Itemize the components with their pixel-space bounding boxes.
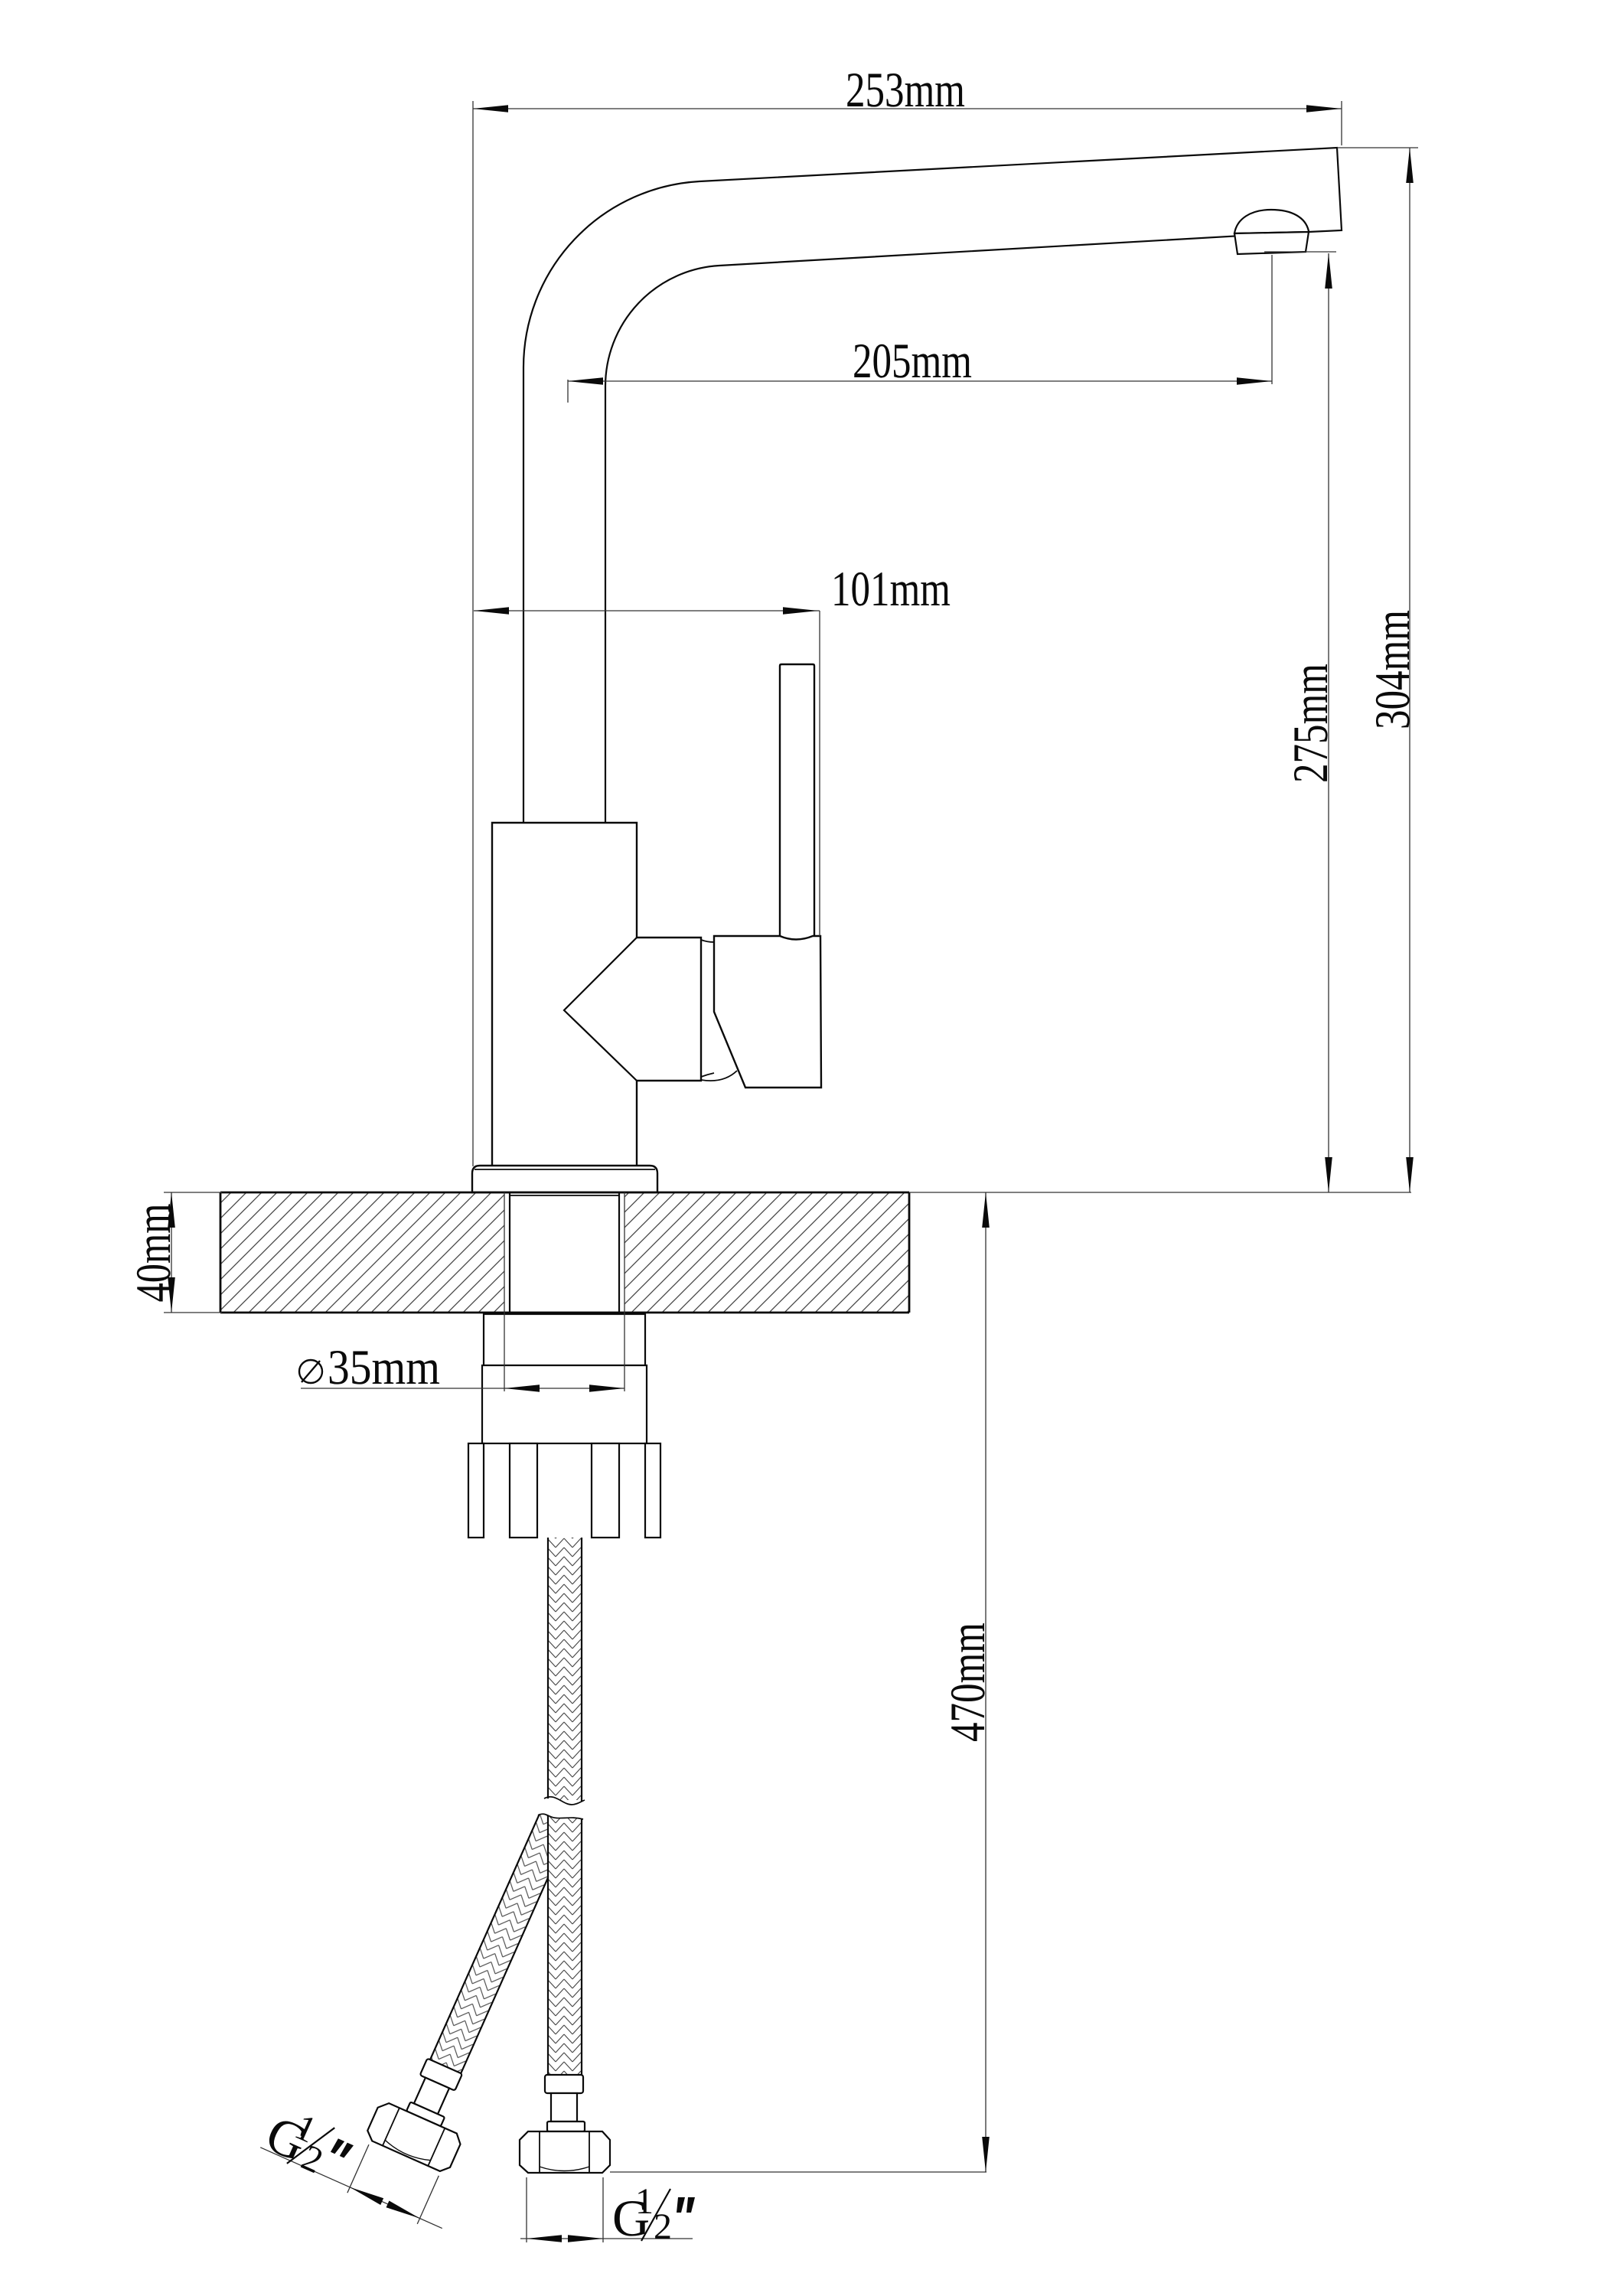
svg-text:275mm: 275mm <box>1283 664 1339 783</box>
svg-text:40mm: 40mm <box>126 1204 181 1303</box>
svg-text:304mm: 304mm <box>1365 610 1420 729</box>
svg-text:470mm: 470mm <box>941 1623 996 1742</box>
svg-text:101mm: 101mm <box>831 562 951 617</box>
svg-text:253mm: 253mm <box>846 63 965 118</box>
svg-text:2: 2 <box>654 2206 672 2247</box>
svg-text:205mm: 205mm <box>853 334 972 389</box>
svg-text:1: 1 <box>635 2181 654 2222</box>
svg-text:35mm: 35mm <box>328 1340 440 1395</box>
